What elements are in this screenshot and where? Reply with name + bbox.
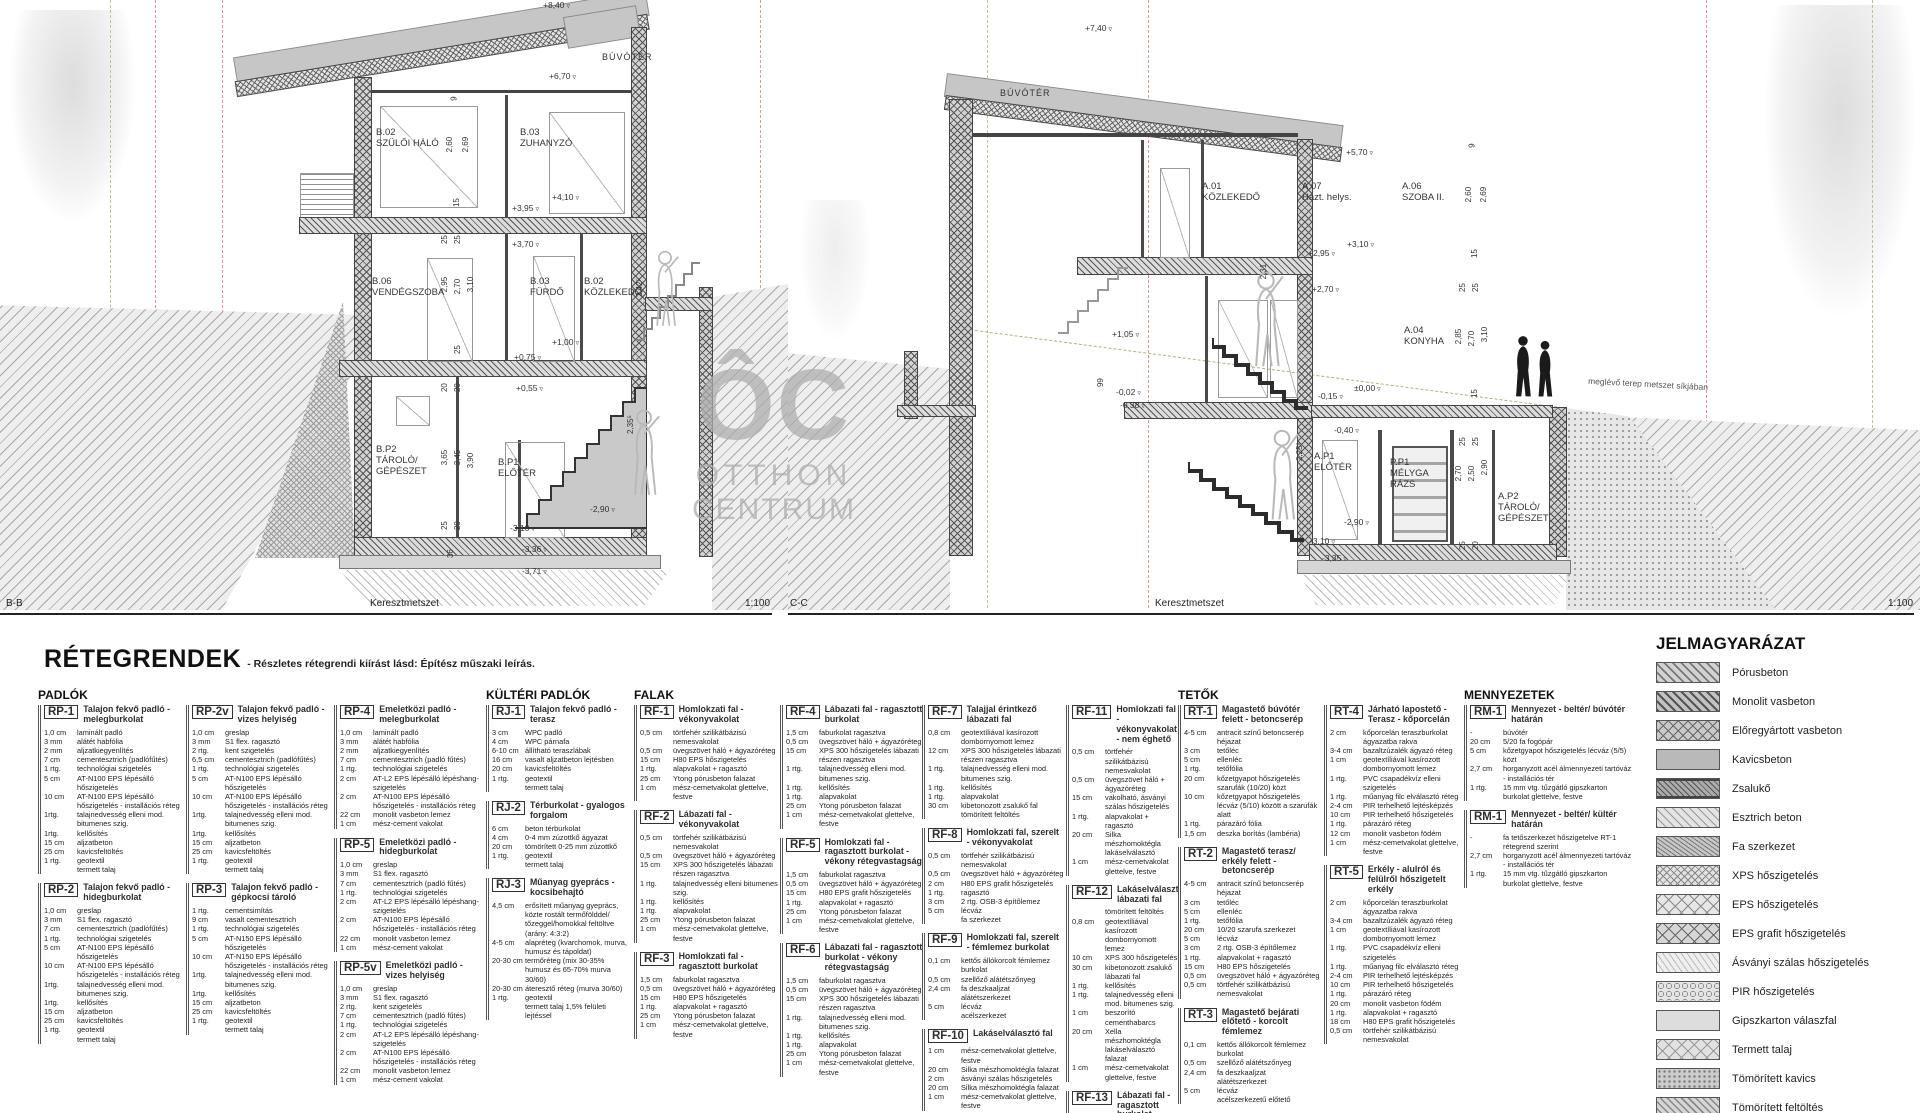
layer-thickness: 0,8 cm	[928, 728, 961, 746]
layer-thickness: 1rtg.	[192, 829, 225, 838]
layer-material: H80 EPS hőszigetelés	[1217, 962, 1322, 971]
layer-row: 1,0 cm laminált padló	[340, 728, 482, 737]
layer-thickness: 15 cm	[1184, 962, 1217, 971]
layer-material: geotextíliával kasírozott dombornyomott …	[1363, 755, 1462, 773]
layer-thickness: 15 cm	[786, 994, 819, 1012]
layer-code: RP-3	[192, 883, 226, 897]
layer-material: geotextil	[525, 774, 632, 783]
legend-label: Esztrich beton	[1732, 812, 1802, 824]
layer-row: fa szerkezet	[928, 915, 1064, 924]
layer-material: geotextil	[225, 856, 332, 865]
layer-material: kőzetgyapot hőszigetelés lécváz (5/5) kö…	[1503, 746, 1632, 764]
drawing-label: +2,70	[1312, 285, 1339, 295]
layer-thickness: 1 rtg.	[1072, 981, 1105, 990]
layer-row: 15 cm aljzatbeton	[44, 838, 184, 847]
partition-cc	[1205, 276, 1208, 403]
layer-schedule-entry: RP-5 Emeletközi padló - hidegburkolat 1,…	[334, 838, 482, 952]
layer-thickness: 15 cm	[640, 755, 673, 764]
layer-material: mész-cement vakolat	[373, 819, 482, 828]
layer-material: mész-cement vakolat	[373, 943, 482, 952]
layer-row: 0,5 cm üvegszövet háló + ágyazóréteg	[640, 746, 778, 755]
layer-row: 5 cm lécváz	[928, 1002, 1064, 1011]
layer-thickness: 1 rtg.	[640, 764, 673, 773]
layer-material: törtfehér szilikátbázisú nemesvakolat	[673, 833, 778, 851]
layer-thickness: 3 mm	[340, 869, 373, 878]
layer-thickness: 2,7 cm	[1470, 851, 1503, 869]
layer-material: H80 EPS hőszigetelés	[673, 993, 778, 1002]
layer-schedule-entry: RF-9 Homlokzati fal, szerelt - fémlemez …	[922, 933, 1064, 1020]
layer-material: tömörített feltöltés	[1105, 907, 1178, 916]
layer-row: 0,5 cm törtfehér szilikátbázisú nemesvak…	[1072, 747, 1178, 775]
layer-thickness: 0,5 cm	[640, 728, 673, 746]
layer-row: 9 cm vasalt cementesztrich	[192, 915, 332, 924]
layer-title: Magastető terasz/ erkély felett - betonc…	[1222, 847, 1322, 877]
layer-row: 1 cm mész-cemetvakolat glettelve, festve	[786, 1058, 924, 1076]
layer-title: Lakáselválasztó lábazati fal	[1117, 885, 1178, 905]
layer-material: üvegszövet háló + ágyazóréteg	[673, 984, 778, 993]
layer-row: 1 cm mész-cemetvakolat glettelve, festve	[1072, 1063, 1178, 1081]
layer-row: 4,5 cm erősített műanyag gyeprács, közte…	[492, 901, 632, 938]
layer-material: talajnedvesség elleni mod. bitumenes szi…	[225, 970, 332, 988]
layer-row: 1 rtg. kellősítés	[1072, 981, 1178, 990]
layer-row: 25 cm kavicsfeltöltés	[44, 847, 184, 856]
layer-row: 15 cm XPS 300 hőszigetelés lábazati rész…	[640, 860, 778, 878]
layer-material: alapvakolat	[819, 792, 924, 801]
layer-row: 1 cm mész-cemetvakolat glettelve, festve	[640, 924, 778, 942]
layer-thickness: 0,8 cm	[1072, 917, 1105, 954]
drawing-label: A.01 KÖZLEKEDŐ	[1202, 182, 1260, 204]
drawing-label: 99	[1096, 378, 1105, 387]
drawing-label: 25	[453, 345, 462, 354]
layer-row: 1 rtg. műanyag filc elválasztó réteg	[1330, 962, 1462, 971]
layer-row: 1 rtg. PVC csapadékvíz elleni szigetelés	[1330, 943, 1462, 961]
layer-thickness: 12 cm	[928, 746, 961, 764]
layer-row: 1 rtg. ragasztó	[928, 888, 1064, 897]
tree-sketch-left	[10, 10, 135, 220]
layer-title: Lábazati fal - ragasztott burkolat	[825, 705, 924, 725]
layer-row: 1 cm mész-cemetvakolat glettelve, festve	[1330, 838, 1462, 856]
layer-row: 22 cm monolit vasbeton lemez	[340, 810, 482, 819]
layer-row: 20 cm Silka mészhomoktégla lakáselválasz…	[1072, 830, 1178, 858]
layer-row: 1rtg. talajnedvesség elleni mod. bitumen…	[192, 970, 332, 988]
material-hatch-swatch	[1656, 720, 1720, 741]
layer-thickness: 1,5 cm	[1184, 829, 1217, 838]
drawing-label: 2,25⁵	[1295, 442, 1304, 461]
layer-thickness: 1 rtg.	[1330, 774, 1363, 792]
drawing-label: +8,40	[543, 1, 570, 11]
drawing-label: A.07 Hazt. helys.	[1302, 182, 1352, 204]
layer-row: termett talaj	[44, 1035, 184, 1044]
material-hatch-swatch	[1656, 981, 1720, 1002]
layer-thickness: 15 cm	[1072, 793, 1105, 811]
layer-material: vasalt cementesztrich	[225, 915, 332, 924]
layer-thickness: 3 cm	[1184, 898, 1217, 907]
layer-thickness: 1 cm	[340, 1075, 373, 1084]
layer-material: aljzatkiegyenlítés	[373, 746, 482, 755]
material-hatch-swatch	[1656, 1010, 1720, 1031]
material-hatch-swatch	[1656, 807, 1720, 828]
layer-thickness: 3-4 cm	[1330, 746, 1363, 755]
layer-material: Ytong pórusbeton falazat	[673, 915, 778, 924]
layer-material: technológiai szigetelés	[225, 764, 332, 773]
layer-thickness: 1 rtg.	[640, 1002, 673, 1011]
layer-row: 2 mm aljzatkiegyenlítés	[340, 746, 482, 755]
terrace-slab-cc	[1312, 406, 1552, 417]
layer-thickness: 5 cm	[192, 934, 225, 952]
drawing-label: -3,71	[522, 567, 547, 577]
layer-row: 12 cm XPS 300 hőszigetelés lábazati rész…	[928, 746, 1064, 764]
layer-thickness: 4,5 cm	[492, 901, 525, 938]
layer-thickness: 0,5 cm	[1184, 1058, 1217, 1067]
layer-thickness: 10 cm	[1330, 810, 1363, 819]
material-hatch-swatch	[1656, 836, 1720, 857]
layer-row: 3 mm alátét habfólia	[340, 737, 482, 746]
layer-thickness: 0,5 cm	[1184, 971, 1217, 980]
schedule-section-header: KÜLTÉRI PADLÓK	[486, 688, 632, 705]
layer-material: beton térburkolat	[525, 824, 632, 833]
layer-material: alapvakolat	[673, 906, 778, 915]
layer-row: 0,5 cm szellőző alátétszőnyeg	[1184, 1058, 1322, 1067]
layer-row: 1 rtg. alapvakolat + ragasztó	[1184, 953, 1322, 962]
layer-title: Emeletközi padló - hidegburkolat	[379, 838, 482, 858]
layer-row: 0,8 cm geotextíliával kasírozott domborn…	[928, 728, 1064, 746]
material-hatch-swatch	[1656, 1097, 1720, 1113]
layer-thickness: 1 rtg.	[192, 856, 225, 865]
layer-thickness: 1 cm	[340, 943, 373, 952]
layer-code: RM-1	[1470, 810, 1506, 824]
layer-row: 12 cm monolit vasbeton födém	[1330, 829, 1462, 838]
layer-title: Lábazati fal - vékonyvakolat	[679, 810, 778, 830]
material-hatch-swatch	[1656, 923, 1720, 944]
window-szuloi-halo	[380, 106, 478, 208]
layer-material: ragasztó	[961, 888, 1064, 897]
schedule-column: FALAK RF-1 Homlokzati fal - vékonyvakola…	[634, 688, 778, 1113]
layer-thickness: 0,5 cm	[1330, 1026, 1363, 1044]
partition-bb	[505, 95, 508, 218]
layer-row: 1rtg. kellősítés	[44, 829, 184, 838]
layer-material: kavicsfeltöltés	[225, 847, 332, 856]
layer-row: 30 cm kibetonozott zsalukő lábazati fal	[1072, 963, 1178, 981]
layer-row: 1 rtg. technológiai szigetelés	[44, 764, 184, 773]
layer-material: tömörített feltöltés	[961, 810, 1064, 819]
layer-row: 20 cm 5/20 fa fogópár	[1470, 737, 1632, 746]
layer-material: alapvakolat	[961, 792, 1064, 801]
layer-thickness	[44, 1035, 77, 1044]
layer-thickness: 3-4 cm	[1330, 916, 1363, 925]
layer-material: tömörített 0-25 mm zúzottkő	[525, 842, 632, 851]
layer-material: Ytong pórusbeton falazat	[819, 1049, 924, 1058]
layer-thickness: 2 cm	[340, 792, 373, 810]
layer-row: 6,5 cm cementesztrich (padlófűtés)	[192, 755, 332, 764]
layer-code: RT-5	[1330, 865, 1363, 879]
layer-thickness: 1 rtg.	[640, 897, 673, 906]
legend-item: Zsalukő	[1656, 778, 1918, 799]
layer-thickness: 2,4 cm	[928, 984, 961, 993]
layer-title: Mennyezet - beltér/ búvótér határán	[1511, 705, 1632, 725]
base-slab-bb	[355, 538, 646, 556]
layer-thickness: 5 cm	[928, 1002, 961, 1011]
layer-row: 1 rtg. alapvakolat + ragasztó	[640, 764, 778, 773]
layer-thickness: 1 rtg.	[340, 888, 373, 897]
layer-row: 20-30 cm áteresztő réteg (murva 30/60)	[492, 984, 632, 993]
layer-code: RP-2	[44, 883, 78, 897]
layer-row: 3 cm tetőléc	[1184, 746, 1322, 755]
layer-material: üvegszövet háló + ágyazóréteg	[673, 746, 778, 755]
layer-material: termett talaj	[525, 860, 632, 869]
drawing-label: B.02 SZÜLŐI HÁLÓ	[376, 128, 439, 150]
schedule-column: RF-7 Talajjal érintkező lábazati fal 0,8…	[922, 688, 1064, 1113]
layer-thickness: -	[1470, 833, 1503, 851]
layer-thickness: 5 cm	[1184, 1086, 1217, 1095]
legend-label: Termett talaj	[1732, 1044, 1792, 1056]
layer-row: 25 cm Ytong pórusbeton falazat	[640, 915, 778, 924]
layer-material: kellősítés	[961, 783, 1064, 792]
drawing-label: -2,90	[590, 505, 615, 515]
layer-code: RF-2	[640, 810, 674, 824]
layer-row: 3 cm tetőléc	[1184, 898, 1322, 907]
layer-thickness: 1,0 cm	[44, 906, 77, 915]
layer-code: RT-3	[1184, 1008, 1217, 1022]
layer-thickness: 0,1 cm	[928, 956, 961, 974]
layer-row: 5 cm AT-N150 EPS lépésálló hőszigetelés	[192, 934, 332, 952]
schedule-column: RP-2v Talajon fekvő padló - vizes helyis…	[186, 688, 332, 1113]
layer-row: 20 cm monolit vasbeton födém	[1330, 999, 1462, 1008]
drawing-label: -3,36	[522, 545, 547, 555]
schedules-subtitle: - Részletes rétegrendi kiírást lásd: Épí…	[247, 658, 535, 670]
layer-row: 7 cm cementesztrich (padló fűtés)	[340, 1011, 482, 1020]
layer-title: Homlokzati fal - ragasztott burkolat - v…	[825, 838, 924, 868]
layer-row: 1 rtg. alapvakolat + ragasztó	[1072, 812, 1178, 830]
layer-title: Lakáselválasztó fal	[973, 1029, 1053, 1039]
layer-thickness: 18 cm	[1330, 1017, 1363, 1026]
layer-material: alapvakolat + ragasztó	[1105, 812, 1178, 830]
drawing-label: -3,35	[1322, 554, 1347, 564]
legend-label: Monolit vasbeton	[1732, 696, 1815, 708]
layer-thickness: 4 cm	[492, 833, 525, 842]
layer-material: fa szerkezet	[961, 915, 1064, 924]
layer-thickness: 25 cm	[192, 1007, 225, 1016]
layer-material: PIR terhelhető lejtésképzés	[1363, 801, 1462, 810]
layer-thickness: 3 mm	[44, 737, 77, 746]
layer-schedule-entry: RT-4 Járható lapostető - Terasz - kőporc…	[1324, 705, 1462, 856]
layer-row: 20 cm 10/20 szarufa szerkezet	[1184, 925, 1322, 934]
layer-schedule-entry: RF-6 Lábazati fal - ragasztott burkolat …	[780, 943, 924, 1076]
layer-thickness: 7 cm	[44, 755, 77, 764]
layer-row: 1 rtg. geotextil	[192, 856, 332, 865]
material-hatch-swatch	[1656, 865, 1720, 886]
layer-thickness: 1,5 cm	[786, 976, 819, 985]
layer-thickness: 1 rtg.	[192, 1016, 225, 1025]
drawing-label: 15	[1470, 249, 1479, 258]
layer-material: AT-L2 EPS lépésálló lépéshang-szigetelés	[373, 774, 482, 792]
layer-row: 1 cm mész-cemetvakolat glettelve, festve	[928, 1092, 1064, 1110]
layer-row: 10 cm AT-N100 EPS lépésálló hőszigetelés…	[44, 961, 184, 979]
layer-thickness: 15 cm	[640, 860, 673, 878]
layer-thickness: 2 cm	[928, 879, 961, 888]
layer-thickness: 1 rtg.	[928, 764, 961, 782]
drawing-label: +3,70	[512, 240, 539, 250]
drawing-label: 20	[440, 383, 449, 392]
drawing-label: P.P1 MÉLYGA RÁZS	[1390, 458, 1429, 491]
layer-material: PIR terhelhető hőszigetelés	[1363, 980, 1462, 989]
layer-thickness: 15 cm	[44, 838, 77, 847]
layer-material: Silka mészhomoktégla falazat	[961, 1083, 1064, 1092]
legend-title: JELMAGYARÁZAT	[1656, 634, 1918, 654]
layer-material: kellősítés	[77, 998, 184, 1007]
layer-material: kellősítés	[77, 829, 184, 838]
layer-row: 2 cm kőporcelán teraszburkolat ágyazatba…	[1330, 728, 1462, 746]
layer-material: S1 flex. ragasztó	[225, 737, 332, 746]
material-hatch-swatch	[1656, 952, 1720, 973]
layer-row: 2 cm AT-L2 EPS lépésálló lépéshang-szige…	[340, 774, 482, 792]
layer-thickness: 1 cm	[1330, 755, 1363, 773]
legend-label: Előregyártott vasbeton	[1732, 725, 1842, 737]
layer-row: 1 cm mész-cemetvakolat glettelve, festve	[1072, 857, 1178, 875]
layer-row: 2 cm ásványi szálas hőszigetelés	[928, 1074, 1064, 1083]
partition-cc	[1378, 430, 1382, 545]
layer-thickness: 1rtg.	[44, 980, 77, 998]
layer-schedule-entry: RF-11 Homlokzati fal - vékonyvakolat - n…	[1066, 705, 1178, 876]
schedule-column: TETŐK RT-1 Magastető búvótér felett - be…	[1178, 688, 1322, 1113]
schedule-section-header	[1324, 688, 1462, 705]
layer-material: mész-cemetvakolat glettelve, festve	[819, 1058, 924, 1076]
layer-material: AT-N100 EPS lépésálló hőszigetelés - ins…	[373, 915, 482, 933]
layer-thickness: 1 cm	[1072, 1008, 1105, 1026]
layer-row: 7 cm cementesztrich (padlófűtés)	[44, 755, 184, 764]
drawing-label: B.P2 TÁROLÓ/ GÉPÉSZET	[376, 445, 427, 478]
layer-thickness: 1 rtg.	[928, 783, 961, 792]
layer-code: RT-1	[1184, 705, 1217, 719]
layer-title: Talajon fekvő padló - vizes helyiség	[238, 705, 332, 725]
layer-thickness: 1 rtg.	[1330, 792, 1363, 801]
layer-row: 7 cm cementesztrich (padló fűtés)	[340, 879, 482, 888]
layer-thickness: 1,0 cm	[340, 860, 373, 869]
layer-material: kent szigetelés	[373, 1002, 482, 1011]
layer-row: 3 mm S1 flex. ragasztó	[44, 915, 184, 924]
boundary-line-red	[1148, 0, 1149, 608]
layer-row: 10 cm PIR terhelhető hőszigetelés	[1330, 980, 1462, 989]
layer-code: RF-1	[640, 705, 674, 719]
layer-title: Homlokzati fal - vékonyvakolat	[679, 705, 778, 725]
drawing-label: -0,02	[1116, 388, 1141, 398]
layer-row: 25 cm Ytong pórusbeton falazat	[786, 801, 924, 810]
layer-schedule-entry: RP-5v Emeletközi padló - vizes helyiség …	[334, 961, 482, 1085]
layer-material: kellősítés	[819, 1031, 924, 1040]
layer-material: termett talaj	[77, 1035, 184, 1044]
layer-row: 15 cm H80 EPS hőszigetelés	[640, 755, 778, 764]
layer-schedule-entry: RP-2v Talajon fekvő padló - vizes helyis…	[186, 705, 332, 874]
layer-thickness: 5 cm	[1184, 934, 1217, 943]
drawing-label: 25	[453, 235, 462, 244]
layer-row: 20 cm Silka mészhomoktégla falazat	[928, 1083, 1064, 1092]
layer-row: 15 cm XPS 300 hőszigetelés lábazati rész…	[786, 994, 924, 1012]
layer-title: Talajon fekvő padló - terasz	[530, 705, 632, 725]
drawing-label: -3,10	[1310, 537, 1335, 547]
layer-row: 4 cm 0-4 mm zúzottkő ágyazat	[492, 833, 632, 842]
layer-thickness: 15 cm	[192, 998, 225, 1007]
layer-material: kettős állókorcolt fémlemez burkolat	[1217, 1040, 1322, 1058]
layer-code: RF-10	[928, 1029, 968, 1043]
layer-row: tömörített feltöltés	[1072, 907, 1178, 916]
layer-thickness	[492, 1002, 525, 1020]
layer-material: XPS 300 hőszigetelés lábazati részen rag…	[819, 746, 924, 764]
layer-thickness: 1 cm	[786, 1058, 819, 1076]
layer-thickness: 5 cm	[1470, 746, 1503, 764]
layer-title: Műanyag gyeprács - kocsibehajtó	[530, 878, 632, 898]
layer-thickness: 20 cm	[928, 1083, 961, 1092]
floor-slab-middle-bb	[340, 361, 646, 376]
schedule-section-header: MENNYEZETEK	[1464, 688, 1632, 705]
layer-thickness: 0,5 cm	[1072, 775, 1105, 793]
layer-thickness: 2 rtg.	[192, 746, 225, 755]
drawing-label: 2,69	[461, 137, 470, 153]
layer-schedule-entry: RP-3 Talajon fekvő padló - gépkocsi táro…	[186, 883, 332, 1034]
layer-material: ellenléc	[1217, 907, 1322, 916]
layer-schedule-entry: RP-1 Talajon fekvő padló - melegburkolat…	[38, 705, 184, 874]
layer-thickness: 25 cm	[192, 847, 225, 856]
layer-material: H80 EPS grafit hőszigetelés	[1363, 1017, 1462, 1026]
layer-row: 15 cm H80 EPS hőszigetelés	[640, 993, 778, 1002]
layer-material: szellőző alátétszőnyeg	[961, 975, 1064, 984]
layer-row: 25 cm Ytong pórusbeton falazat	[786, 1049, 924, 1058]
layer-row: 1 rtg. PVC csapadékvíz elleni szigetelés	[1330, 774, 1462, 792]
section-code-cc: C-C	[790, 598, 808, 609]
legend-label: Fa szerkezet	[1732, 841, 1795, 853]
layer-row: acélszerkezetű előtető	[1184, 1095, 1322, 1104]
layer-row: 1 cm mész-cemetvakolat glettelve, festve	[786, 810, 924, 828]
layer-row: 1 rtg. kellősítés	[640, 897, 778, 906]
person-outline-bb	[648, 250, 682, 328]
layer-row: 3 mm S1 flex. ragasztó	[340, 869, 482, 878]
material-hatch-swatch	[1656, 749, 1720, 770]
partition-cc	[1492, 430, 1495, 545]
layer-thickness: 20 cm	[1184, 925, 1217, 934]
layer-thickness: 30 cm	[1072, 963, 1105, 981]
layer-material: törtfehér szilikátbázisú nemesvakolat	[1105, 747, 1178, 775]
legend-item: Monolit vasbeton	[1656, 691, 1918, 712]
layer-row: 1 rtg. alapvakolat	[928, 792, 1064, 801]
layer-material: AT-N150 EPS lépésálló hőszigetelés	[225, 934, 332, 952]
layer-title: Homlokzati fal, szerelt - vékonyvakolat	[967, 828, 1064, 848]
drawing-label: 15	[452, 198, 461, 207]
layer-thickness: 1 rtg.	[1184, 916, 1217, 925]
layer-row: 2,7 cm horganyzott acél álmennyezeti tar…	[1470, 764, 1632, 782]
drawing-label: 2,90	[1480, 460, 1489, 476]
layer-row: 0,5 cm üvegszövet háló + ágyazóréteg	[640, 984, 778, 993]
material-hatch-swatch	[1656, 662, 1720, 683]
layer-material: kavicsfeltöltés	[225, 1007, 332, 1016]
layer-material: talajnedvesség elleni mod. bitumenes szi…	[77, 980, 184, 998]
drawing-label: 3,90	[466, 453, 475, 469]
layer-thickness: 1 rtg.	[492, 774, 525, 783]
legend-item: Előregyártott vasbeton	[1656, 720, 1918, 741]
layer-thickness: 0,5 cm	[786, 879, 819, 888]
layer-material: mész-cement vakolat	[373, 1075, 482, 1084]
layer-thickness: 1 rtg.	[44, 1025, 77, 1034]
layer-thickness: 10 cm	[1072, 953, 1105, 962]
layer-thickness: 1 rtg.	[492, 993, 525, 1002]
layer-material: H80 EPS grafit hőszigetelés	[961, 879, 1064, 888]
layer-thickness: 1 rtg.	[786, 783, 819, 792]
layer-thickness: 15 cm	[786, 746, 819, 764]
layer-row: 20 cm kavicsfeltöltés	[492, 764, 632, 773]
legend-label: Zsalukő	[1732, 783, 1771, 795]
layer-row: 1 cm geotextíliával kasírozott dombornyo…	[1330, 925, 1462, 943]
layer-row: 7 cm cementesztrich (padlófűtés)	[44, 924, 184, 933]
layer-row: 4-5 cm antracit színű betoncserép héjaza…	[1184, 728, 1322, 746]
layer-row: 15 cm aljzatbeton	[192, 838, 332, 847]
layer-material: törtfehér szilikátbázisú nemesvakolat	[1363, 1026, 1462, 1044]
